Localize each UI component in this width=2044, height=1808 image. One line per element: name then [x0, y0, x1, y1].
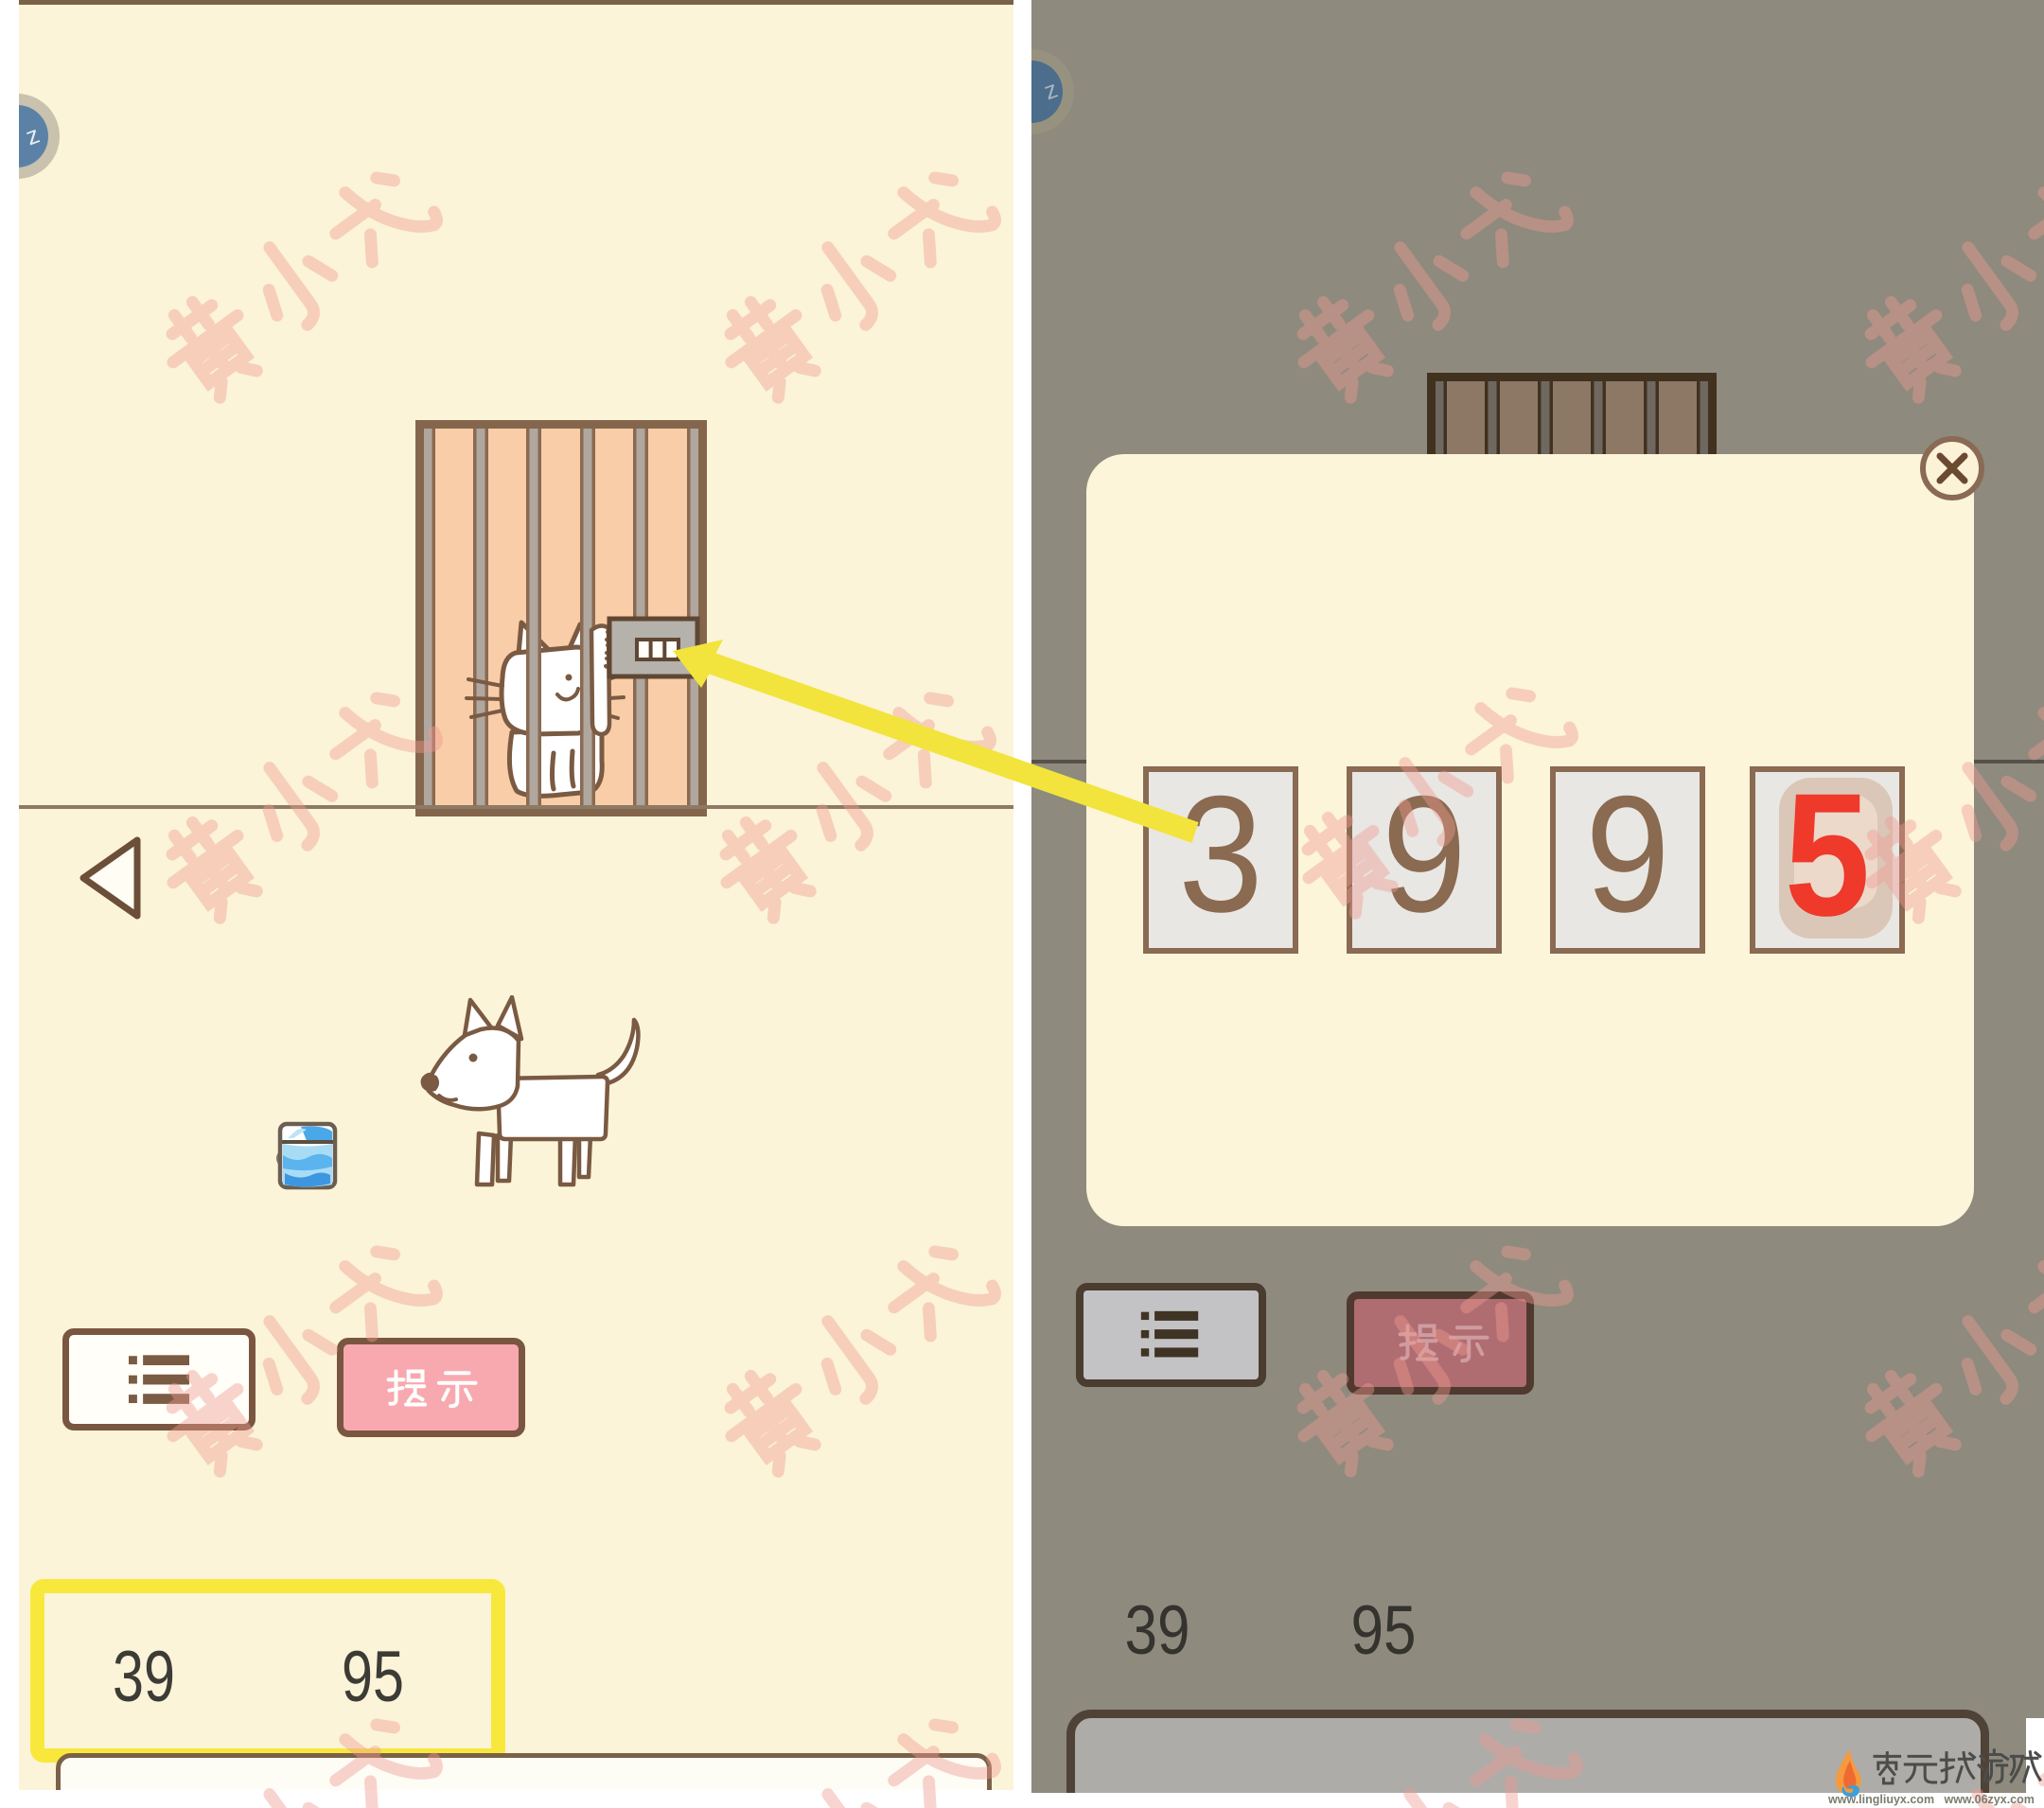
svg-text:www.lingliuyx.com www.06zyx.: www.lingliuyx.com www.06zyx.com — [1827, 1793, 2035, 1806]
